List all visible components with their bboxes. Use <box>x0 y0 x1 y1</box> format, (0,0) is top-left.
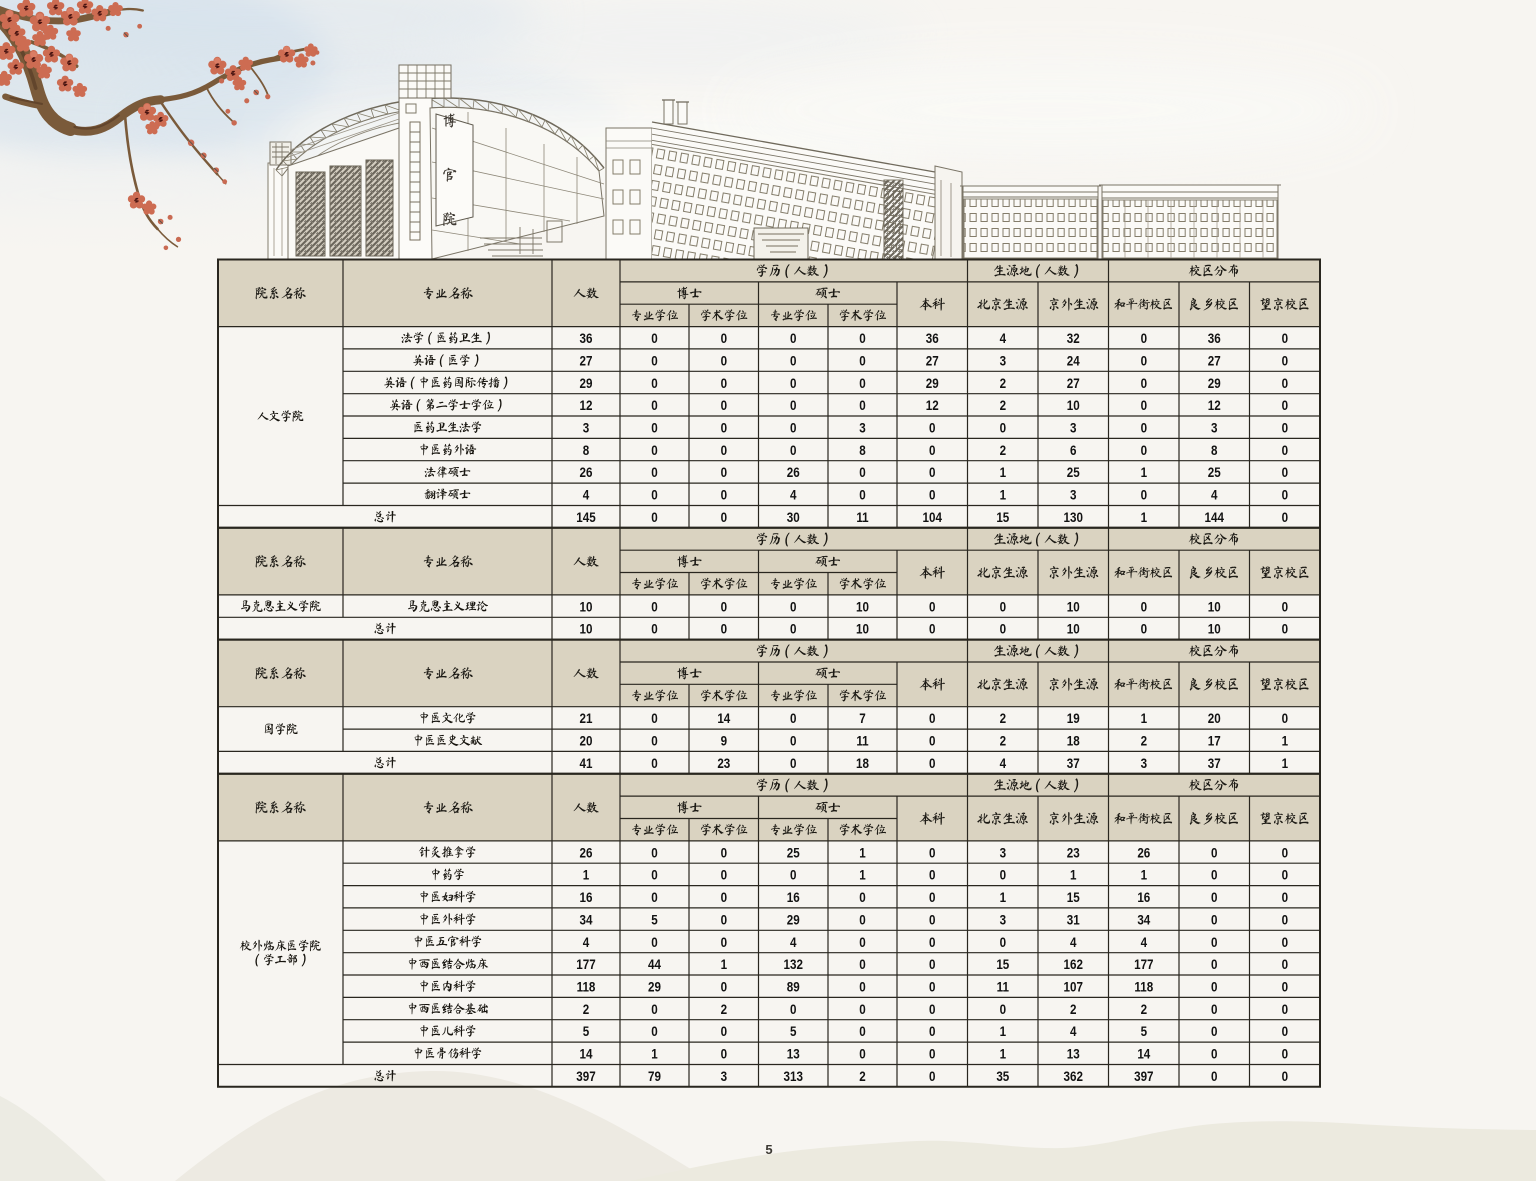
svg-text:0: 0 <box>721 844 727 860</box>
svg-text:0: 0 <box>859 1023 865 1039</box>
svg-text:0: 0 <box>929 420 935 436</box>
svg-text:10: 10 <box>1067 598 1080 614</box>
svg-text:0: 0 <box>790 330 796 346</box>
svg-text:0: 0 <box>929 1068 935 1084</box>
svg-text:132: 132 <box>783 956 802 972</box>
svg-text:0: 0 <box>929 1001 935 1017</box>
svg-text:0: 0 <box>721 621 727 637</box>
svg-text:0: 0 <box>859 911 865 927</box>
svg-text:1: 1 <box>1000 487 1006 503</box>
svg-text:27: 27 <box>1208 352 1221 368</box>
svg-text:0: 0 <box>651 487 657 503</box>
svg-text:0: 0 <box>1000 621 1006 637</box>
svg-text:36: 36 <box>1208 330 1221 346</box>
svg-text:0: 0 <box>1282 979 1288 995</box>
svg-text:12: 12 <box>926 397 939 413</box>
svg-text:1: 1 <box>859 844 865 860</box>
svg-text:2: 2 <box>721 1001 727 1017</box>
svg-text:2: 2 <box>859 1068 865 1084</box>
svg-text:0: 0 <box>1282 397 1288 413</box>
svg-text:11: 11 <box>856 733 868 749</box>
svg-text:4: 4 <box>1000 330 1006 346</box>
svg-text:1: 1 <box>1000 889 1006 905</box>
svg-text:0: 0 <box>1141 375 1147 391</box>
svg-text:0: 0 <box>790 442 796 458</box>
svg-text:3: 3 <box>1000 352 1006 368</box>
svg-text:130: 130 <box>1063 509 1082 525</box>
svg-text:4: 4 <box>583 487 589 503</box>
svg-text:0: 0 <box>1141 621 1147 637</box>
svg-text:23: 23 <box>717 755 730 771</box>
svg-text:0: 0 <box>929 710 935 726</box>
svg-text:1: 1 <box>1141 867 1147 883</box>
svg-text:0: 0 <box>1282 889 1288 905</box>
svg-text:2: 2 <box>1000 442 1006 458</box>
svg-text:0: 0 <box>651 464 657 480</box>
svg-text:0: 0 <box>790 352 796 368</box>
svg-text:0: 0 <box>790 598 796 614</box>
svg-text:3: 3 <box>1211 420 1217 436</box>
svg-text:2: 2 <box>1000 733 1006 749</box>
svg-text:4: 4 <box>1070 934 1076 950</box>
svg-text:0: 0 <box>929 1046 935 1062</box>
svg-text:0: 0 <box>1211 911 1217 927</box>
svg-text:0: 0 <box>651 375 657 391</box>
svg-text:5: 5 <box>790 1023 796 1039</box>
svg-text:0: 0 <box>1282 464 1288 480</box>
svg-text:27: 27 <box>1067 375 1080 391</box>
svg-text:0: 0 <box>721 487 727 503</box>
svg-text:0: 0 <box>651 621 657 637</box>
svg-text:0: 0 <box>1211 934 1217 950</box>
svg-text:10: 10 <box>1208 598 1221 614</box>
svg-text:12: 12 <box>580 397 593 413</box>
svg-text:14: 14 <box>580 1046 593 1062</box>
svg-text:14: 14 <box>717 710 730 726</box>
svg-text:34: 34 <box>1137 911 1150 927</box>
svg-text:1: 1 <box>1000 1023 1006 1039</box>
svg-text:0: 0 <box>1282 487 1288 503</box>
svg-text:0: 0 <box>651 442 657 458</box>
svg-text:144: 144 <box>1204 509 1223 525</box>
svg-text:0: 0 <box>1282 442 1288 458</box>
svg-text:2: 2 <box>1141 1001 1147 1017</box>
svg-text:1: 1 <box>1282 733 1288 749</box>
svg-text:1: 1 <box>583 867 589 883</box>
svg-text:0: 0 <box>721 1023 727 1039</box>
svg-text:11: 11 <box>997 979 1009 995</box>
svg-text:5: 5 <box>1141 1023 1147 1039</box>
svg-text:0: 0 <box>721 375 727 391</box>
svg-text:0: 0 <box>651 844 657 860</box>
svg-text:0: 0 <box>1282 621 1288 637</box>
svg-text:24: 24 <box>1067 352 1080 368</box>
svg-text:0: 0 <box>859 956 865 972</box>
svg-text:0: 0 <box>929 889 935 905</box>
svg-text:397: 397 <box>1134 1068 1153 1084</box>
svg-text:0: 0 <box>721 598 727 614</box>
svg-text:0: 0 <box>1282 352 1288 368</box>
svg-text:41: 41 <box>580 755 593 771</box>
svg-text:0: 0 <box>1282 1023 1288 1039</box>
svg-text:1: 1 <box>1141 509 1147 525</box>
svg-text:1: 1 <box>721 956 727 972</box>
svg-text:26: 26 <box>1137 844 1150 860</box>
svg-text:0: 0 <box>721 352 727 368</box>
svg-text:0: 0 <box>1282 598 1288 614</box>
svg-text:0: 0 <box>1211 1001 1217 1017</box>
svg-text:13: 13 <box>787 1046 800 1062</box>
svg-text:37: 37 <box>1208 755 1221 771</box>
svg-text:5: 5 <box>765 1142 772 1157</box>
svg-text:0: 0 <box>651 733 657 749</box>
svg-text:0: 0 <box>1000 1001 1006 1017</box>
svg-text:29: 29 <box>926 375 939 391</box>
svg-text:1: 1 <box>1141 710 1147 726</box>
svg-text:0: 0 <box>721 934 727 950</box>
svg-text:79: 79 <box>648 1068 661 1084</box>
svg-text:11: 11 <box>856 509 868 525</box>
svg-text:3: 3 <box>1070 420 1076 436</box>
svg-text:0: 0 <box>790 621 796 637</box>
svg-text:5: 5 <box>583 1023 589 1039</box>
svg-text:0: 0 <box>1282 956 1288 972</box>
svg-text:0: 0 <box>651 755 657 771</box>
svg-text:12: 12 <box>1208 397 1221 413</box>
svg-text:29: 29 <box>580 375 593 391</box>
svg-text:4: 4 <box>790 487 796 503</box>
svg-text:0: 0 <box>1282 867 1288 883</box>
svg-text:23: 23 <box>1067 844 1080 860</box>
svg-text:18: 18 <box>1067 733 1080 749</box>
svg-text:0: 0 <box>929 956 935 972</box>
svg-text:20: 20 <box>580 733 593 749</box>
svg-text:0: 0 <box>790 1001 796 1017</box>
svg-text:313: 313 <box>783 1068 802 1084</box>
svg-text:0: 0 <box>1282 375 1288 391</box>
svg-text:3: 3 <box>1000 911 1006 927</box>
svg-text:362: 362 <box>1063 1068 1082 1084</box>
svg-text:0: 0 <box>1282 509 1288 525</box>
svg-text:0: 0 <box>1211 867 1217 883</box>
svg-text:0: 0 <box>859 330 865 346</box>
svg-text:29: 29 <box>787 911 800 927</box>
svg-text:0: 0 <box>1141 420 1147 436</box>
svg-text:0: 0 <box>790 375 796 391</box>
svg-text:0: 0 <box>651 330 657 346</box>
svg-text:0: 0 <box>929 487 935 503</box>
svg-text:0: 0 <box>859 397 865 413</box>
svg-text:4: 4 <box>1141 934 1147 950</box>
svg-text:0: 0 <box>1211 1046 1217 1062</box>
svg-text:0: 0 <box>1282 1046 1288 1062</box>
svg-text:0: 0 <box>1211 1068 1217 1084</box>
svg-text:0: 0 <box>651 598 657 614</box>
svg-text:0: 0 <box>721 867 727 883</box>
svg-text:0: 0 <box>721 330 727 346</box>
svg-text:0: 0 <box>790 420 796 436</box>
svg-text:0: 0 <box>859 1001 865 1017</box>
svg-text:17: 17 <box>1208 733 1221 749</box>
svg-text:1: 1 <box>1141 464 1147 480</box>
svg-text:1: 1 <box>651 1046 657 1062</box>
svg-text:36: 36 <box>580 330 593 346</box>
svg-text:0: 0 <box>721 442 727 458</box>
svg-text:0: 0 <box>929 464 935 480</box>
svg-text:34: 34 <box>580 911 593 927</box>
svg-text:30: 30 <box>787 509 800 525</box>
svg-text:3: 3 <box>859 420 865 436</box>
svg-text:31: 31 <box>1067 911 1080 927</box>
svg-text:0: 0 <box>1211 979 1217 995</box>
svg-text:0: 0 <box>721 911 727 927</box>
svg-text:0: 0 <box>1282 330 1288 346</box>
svg-text:89: 89 <box>787 979 800 995</box>
svg-text:26: 26 <box>580 844 593 860</box>
svg-text:4: 4 <box>790 934 796 950</box>
svg-text:0: 0 <box>1282 934 1288 950</box>
svg-text:0: 0 <box>859 464 865 480</box>
svg-text:0: 0 <box>790 733 796 749</box>
svg-text:0: 0 <box>859 934 865 950</box>
svg-text:145: 145 <box>576 509 595 525</box>
svg-text:0: 0 <box>929 867 935 883</box>
svg-text:2: 2 <box>1000 397 1006 413</box>
svg-text:15: 15 <box>996 509 1009 525</box>
svg-text:162: 162 <box>1063 956 1082 972</box>
svg-text:0: 0 <box>651 934 657 950</box>
svg-text:25: 25 <box>787 844 800 860</box>
svg-text:10: 10 <box>1067 397 1080 413</box>
svg-text:0: 0 <box>651 889 657 905</box>
svg-text:0: 0 <box>1282 710 1288 726</box>
svg-text:13: 13 <box>1067 1046 1080 1062</box>
svg-text:118: 118 <box>1134 979 1153 995</box>
svg-text:0: 0 <box>790 755 796 771</box>
svg-text:177: 177 <box>576 956 595 972</box>
svg-text:0: 0 <box>859 1046 865 1062</box>
svg-text:0: 0 <box>859 375 865 391</box>
svg-text:0: 0 <box>929 755 935 771</box>
svg-text:36: 36 <box>926 330 939 346</box>
svg-text:0: 0 <box>790 710 796 726</box>
svg-text:0: 0 <box>1282 911 1288 927</box>
svg-text:177: 177 <box>1134 956 1153 972</box>
svg-text:0: 0 <box>721 464 727 480</box>
svg-text:0: 0 <box>790 867 796 883</box>
svg-text:3: 3 <box>583 420 589 436</box>
svg-text:104: 104 <box>922 509 941 525</box>
svg-text:10: 10 <box>1208 621 1221 637</box>
svg-text:3: 3 <box>1141 755 1147 771</box>
svg-text:25: 25 <box>1208 464 1221 480</box>
svg-text:0: 0 <box>859 487 865 503</box>
svg-text:8: 8 <box>859 442 865 458</box>
svg-text:0: 0 <box>929 598 935 614</box>
svg-text:397: 397 <box>576 1068 595 1084</box>
svg-text:0: 0 <box>1141 442 1147 458</box>
svg-text:0: 0 <box>651 420 657 436</box>
svg-text:29: 29 <box>648 979 661 995</box>
svg-text:2: 2 <box>1000 710 1006 726</box>
svg-text:7: 7 <box>859 710 865 726</box>
svg-text:0: 0 <box>1282 420 1288 436</box>
svg-text:37: 37 <box>1067 755 1080 771</box>
svg-text:0: 0 <box>1282 844 1288 860</box>
svg-text:35: 35 <box>996 1068 1009 1084</box>
svg-text:0: 0 <box>1000 598 1006 614</box>
svg-text:10: 10 <box>856 621 869 637</box>
svg-text:0: 0 <box>721 509 727 525</box>
svg-text:0: 0 <box>1282 1001 1288 1017</box>
svg-text:0: 0 <box>1000 867 1006 883</box>
svg-text:0: 0 <box>929 911 935 927</box>
svg-text:0: 0 <box>651 867 657 883</box>
svg-text:0: 0 <box>929 979 935 995</box>
svg-text:26: 26 <box>787 464 800 480</box>
svg-text:32: 32 <box>1067 330 1080 346</box>
svg-text:8: 8 <box>583 442 589 458</box>
svg-text:5: 5 <box>651 911 657 927</box>
svg-text:10: 10 <box>580 598 593 614</box>
svg-text:0: 0 <box>1000 420 1006 436</box>
svg-text:1: 1 <box>1000 1046 1006 1062</box>
svg-text:0: 0 <box>1211 1023 1217 1039</box>
svg-text:0: 0 <box>929 442 935 458</box>
svg-text:9: 9 <box>721 733 727 749</box>
svg-text:0: 0 <box>721 397 727 413</box>
svg-text:15: 15 <box>996 956 1009 972</box>
svg-text:16: 16 <box>787 889 800 905</box>
svg-text:2: 2 <box>583 1001 589 1017</box>
svg-text:25: 25 <box>1067 464 1080 480</box>
svg-text:1: 1 <box>1000 464 1006 480</box>
svg-text:15: 15 <box>1067 889 1080 905</box>
svg-text:21: 21 <box>580 710 593 726</box>
svg-text:0: 0 <box>929 844 935 860</box>
svg-text:19: 19 <box>1067 710 1080 726</box>
svg-text:0: 0 <box>1211 844 1217 860</box>
svg-text:29: 29 <box>1208 375 1221 391</box>
svg-text:4: 4 <box>1211 487 1217 503</box>
svg-text:0: 0 <box>721 979 727 995</box>
svg-text:2: 2 <box>1070 1001 1076 1017</box>
svg-text:0: 0 <box>651 509 657 525</box>
svg-text:0: 0 <box>1141 487 1147 503</box>
svg-text:44: 44 <box>648 956 661 972</box>
svg-text:4: 4 <box>1000 755 1006 771</box>
svg-text:4: 4 <box>583 934 589 950</box>
svg-text:0: 0 <box>1282 1068 1288 1084</box>
svg-text:0: 0 <box>651 397 657 413</box>
svg-text:27: 27 <box>580 352 593 368</box>
svg-text:0: 0 <box>721 1046 727 1062</box>
svg-text:18: 18 <box>856 755 869 771</box>
svg-text:16: 16 <box>1137 889 1150 905</box>
svg-text:26: 26 <box>580 464 593 480</box>
svg-text:0: 0 <box>651 1001 657 1017</box>
svg-text:1: 1 <box>859 867 865 883</box>
svg-text:0: 0 <box>859 979 865 995</box>
svg-text:118: 118 <box>577 979 596 995</box>
svg-text:0: 0 <box>651 1023 657 1039</box>
svg-text:3: 3 <box>721 1068 727 1084</box>
svg-text:10: 10 <box>1067 621 1080 637</box>
svg-text:107: 107 <box>1063 979 1082 995</box>
svg-text:16: 16 <box>580 889 593 905</box>
svg-text:1: 1 <box>1282 755 1288 771</box>
svg-text:3: 3 <box>1070 487 1076 503</box>
svg-text:6: 6 <box>1070 442 1076 458</box>
svg-text:4: 4 <box>1070 1023 1076 1039</box>
svg-text:3: 3 <box>1000 844 1006 860</box>
svg-text:0: 0 <box>790 397 796 413</box>
svg-text:0: 0 <box>859 352 865 368</box>
svg-text:20: 20 <box>1208 710 1221 726</box>
svg-text:0: 0 <box>1211 956 1217 972</box>
svg-text:0: 0 <box>859 889 865 905</box>
svg-text:0: 0 <box>929 733 935 749</box>
svg-text:0: 0 <box>721 420 727 436</box>
svg-text:0: 0 <box>1211 889 1217 905</box>
svg-text:0: 0 <box>1141 397 1147 413</box>
svg-text:10: 10 <box>580 621 593 637</box>
svg-text:8: 8 <box>1211 442 1217 458</box>
svg-text:0: 0 <box>1141 330 1147 346</box>
svg-text:0: 0 <box>1141 598 1147 614</box>
svg-text:2: 2 <box>1141 733 1147 749</box>
svg-text:1: 1 <box>1070 867 1076 883</box>
svg-text:0: 0 <box>929 1023 935 1039</box>
svg-text:0: 0 <box>651 352 657 368</box>
svg-text:0: 0 <box>1000 934 1006 950</box>
svg-text:10: 10 <box>856 598 869 614</box>
svg-text:0: 0 <box>1141 352 1147 368</box>
svg-text:27: 27 <box>926 352 939 368</box>
svg-text:2: 2 <box>1000 375 1006 391</box>
svg-text:14: 14 <box>1137 1046 1150 1062</box>
svg-text:0: 0 <box>651 710 657 726</box>
svg-text:0: 0 <box>721 889 727 905</box>
svg-text:0: 0 <box>929 621 935 637</box>
svg-text:0: 0 <box>929 934 935 950</box>
